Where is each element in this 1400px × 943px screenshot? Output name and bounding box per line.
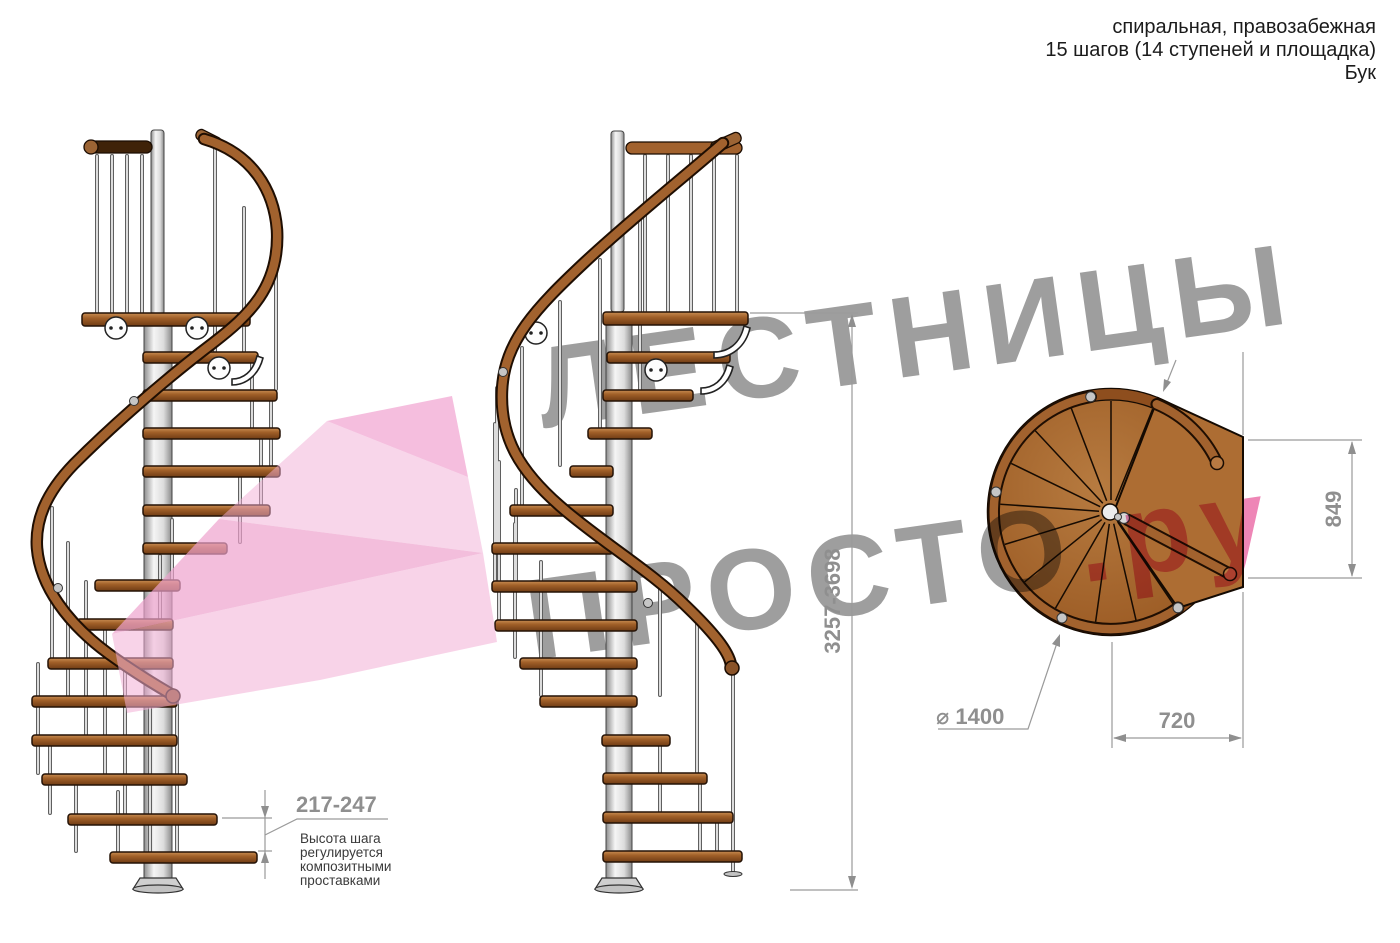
tread — [32, 735, 177, 746]
tread — [492, 581, 637, 592]
handrail-end-cap — [725, 661, 739, 675]
header-steps: 15 шагов (14 ступеней и площадка) — [1045, 39, 1376, 61]
handrail-connector — [54, 584, 63, 593]
step-height-label: 217-247 — [296, 792, 377, 817]
handrail-connector — [130, 397, 139, 406]
post-base-flange — [724, 872, 742, 877]
spiral-staircase-technical-drawing: ЛЕСТНИЦЫ ПРОСТО.ру — [0, 0, 1400, 943]
tread — [603, 773, 707, 784]
note-line1: Высота шага — [300, 831, 381, 846]
drawing-svg: ЛЕСТНИЦЫ ПРОСТО.ру — [0, 0, 1400, 943]
tread — [495, 620, 637, 631]
note-line2: регулируется — [300, 845, 383, 860]
tread — [492, 543, 613, 554]
tread — [603, 812, 733, 823]
step-height-note: Высота шага регулируется композитными пр… — [300, 831, 391, 888]
landing-platform — [603, 312, 748, 325]
handrail-connector — [644, 599, 653, 608]
tread — [588, 428, 652, 439]
tread — [143, 466, 280, 477]
tread — [520, 658, 637, 669]
tread — [143, 428, 280, 439]
plan-rail-connector — [1057, 613, 1067, 623]
handrail-connector — [499, 368, 508, 377]
tread — [602, 735, 670, 746]
header-type: спиральная, правозабежная — [1112, 16, 1376, 38]
landing-width-dimension: 720 — [1112, 642, 1242, 748]
tread — [540, 696, 637, 707]
watermark-row2-suffix: .ру — [1069, 453, 1286, 608]
landing-depth-label: 849 — [1321, 491, 1346, 528]
total-height-label: 3257-3698 — [820, 548, 845, 653]
landing-width-label: 720 — [1159, 708, 1196, 733]
tread — [603, 851, 742, 862]
tread — [607, 352, 730, 363]
diameter-callout: ⌀ 1400 — [936, 634, 1060, 729]
note-line4: проставками — [300, 873, 380, 888]
header: спиральная, правозабежная 15 шагов (14 с… — [1045, 16, 1376, 84]
note-line3: композитными — [300, 859, 391, 874]
right-elevation-view — [492, 131, 750, 893]
tread — [68, 814, 217, 825]
tread — [570, 466, 613, 477]
center-pole-upper — [151, 130, 164, 315]
tread — [42, 774, 187, 785]
tread — [603, 390, 693, 401]
diameter-label: ⌀ 1400 — [936, 704, 1004, 729]
tread — [110, 852, 257, 863]
tread — [143, 390, 277, 401]
header-material: Бук — [1345, 62, 1377, 84]
